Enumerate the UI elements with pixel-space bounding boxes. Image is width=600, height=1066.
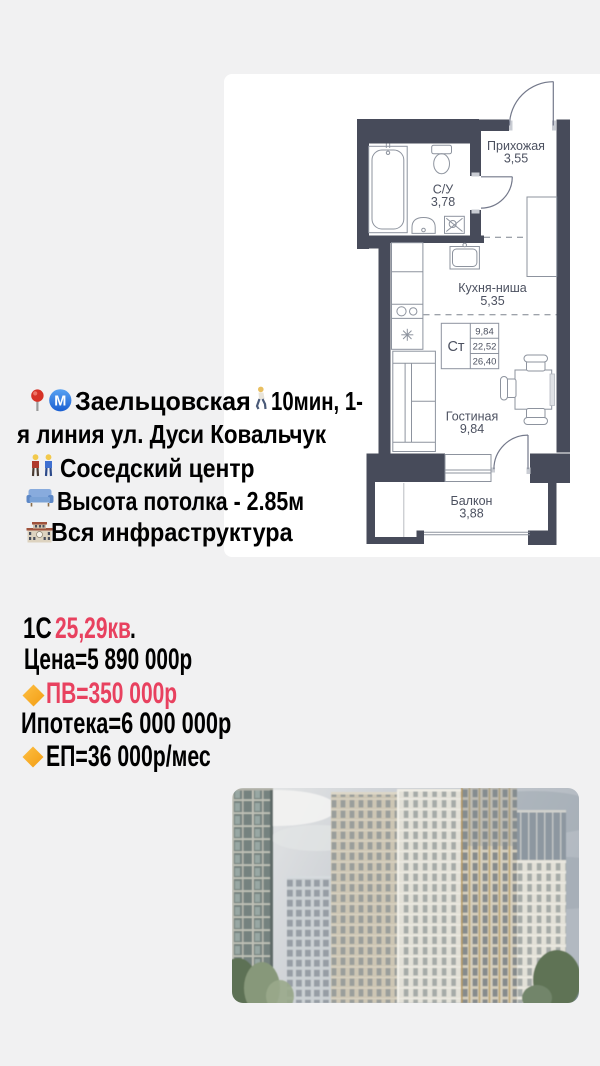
svg-text:9,84: 9,84 — [475, 326, 494, 337]
svg-text:22,52: 22,52 — [473, 341, 497, 352]
svg-text:26,40: 26,40 — [473, 357, 497, 368]
svg-text:5,35: 5,35 — [480, 294, 504, 308]
svg-text:3,55: 3,55 — [504, 152, 528, 166]
svg-text:3,88: 3,88 — [459, 507, 483, 521]
svg-text:Кухня-ниша: Кухня-ниша — [458, 281, 527, 295]
svg-text:9,84: 9,84 — [460, 422, 484, 436]
svg-text:3,78: 3,78 — [431, 195, 455, 209]
svg-text:М: М — [55, 393, 67, 409]
svg-text:Ст: Ст — [447, 339, 464, 355]
